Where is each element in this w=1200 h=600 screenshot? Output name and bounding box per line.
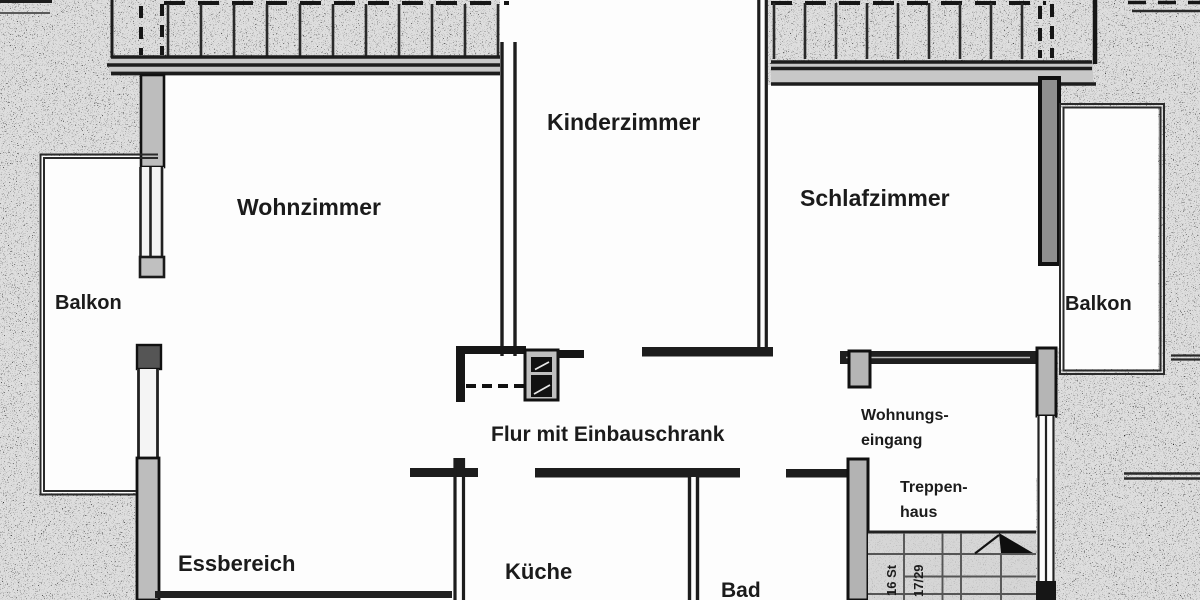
- svg-text:eingang: eingang: [861, 432, 922, 449]
- svg-text:Kinderzimmer: Kinderzimmer: [547, 109, 700, 135]
- svg-text:Flur mit Einbauschrank: Flur mit Einbauschrank: [491, 423, 725, 446]
- svg-text:Wohnzimmer: Wohnzimmer: [237, 194, 381, 220]
- svg-text:17/29: 17/29: [911, 564, 926, 597]
- svg-text:Balkon: Balkon: [55, 292, 122, 314]
- svg-text:Küche: Küche: [505, 559, 572, 584]
- svg-text:Schlafzimmer: Schlafzimmer: [800, 185, 950, 211]
- svg-text:haus: haus: [900, 504, 937, 521]
- svg-text:Balkon: Balkon: [1065, 293, 1132, 315]
- svg-text:16 St: 16 St: [884, 564, 899, 596]
- svg-text:Wohnungs-: Wohnungs-: [861, 407, 949, 424]
- svg-text:Essbereich: Essbereich: [178, 551, 295, 576]
- svg-text:Bad: Bad: [721, 579, 761, 600]
- svg-text:Treppen-: Treppen-: [900, 479, 968, 496]
